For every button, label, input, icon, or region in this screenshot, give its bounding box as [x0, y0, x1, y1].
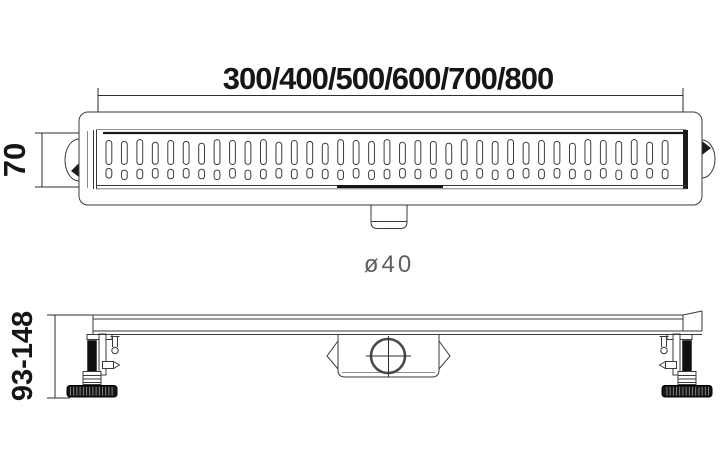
- trap-assembly: [327, 335, 450, 377]
- top-view: 300/400/500/600/700/800 70: [0, 61, 715, 278]
- height-dimension-label: 93-148: [7, 311, 39, 401]
- hanger-ball: [112, 347, 118, 353]
- trap-right-clip: [439, 341, 450, 369]
- outlet-stub: [371, 205, 407, 229]
- drain-channel-top: [65, 112, 715, 229]
- left-foot: [67, 334, 120, 397]
- outlet-diameter-label: ø40: [364, 251, 414, 278]
- frame-right-edge: [683, 130, 688, 189]
- side-view: 93-148: [7, 311, 712, 401]
- flange-outline: [79, 112, 702, 205]
- body-right-bevel: [683, 311, 702, 315]
- side-pin-body: [103, 362, 114, 369]
- length-dimension-label: 300/400/500/600/700/800: [223, 61, 553, 96]
- trap-left-clip: [327, 341, 338, 369]
- side-pin-tip: [114, 362, 120, 369]
- drawing-canvas: 300/400/500/600/700/800 70: [0, 0, 723, 471]
- threaded-rod: [88, 341, 97, 372]
- drain-channel-side: [93, 311, 702, 335]
- right-foot: [660, 334, 713, 397]
- width-dimension-label: 70: [0, 143, 32, 177]
- knurled-base: [67, 386, 117, 398]
- drain-technical-drawing: 300/400/500/600/700/800 70: [0, 0, 723, 471]
